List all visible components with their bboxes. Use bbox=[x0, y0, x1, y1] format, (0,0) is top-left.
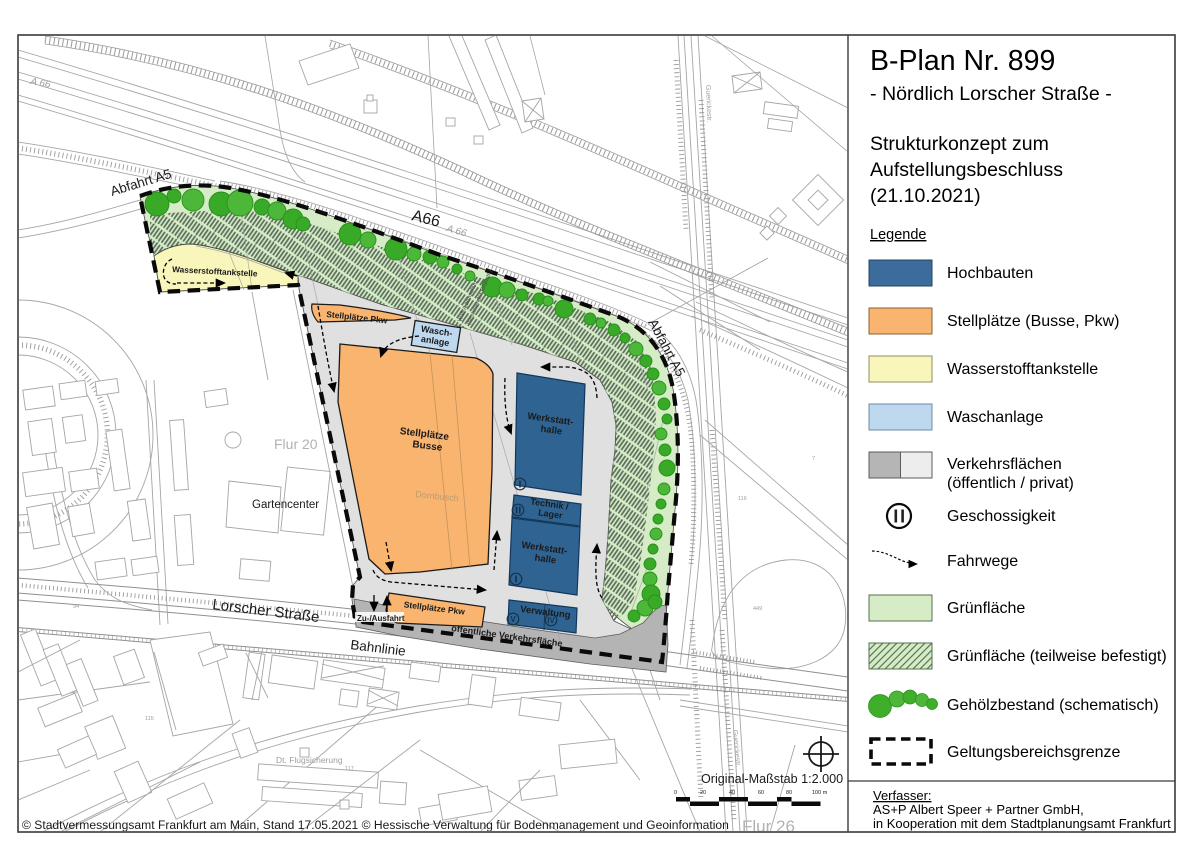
svg-text:in Kooperation mit dem Stadtpl: in Kooperation mit dem Stadtplanungsamt … bbox=[873, 816, 1171, 831]
svg-text:AS+P Albert Speer + Partner Gm: AS+P Albert Speer + Partner GmbH, bbox=[873, 802, 1084, 817]
svg-text:Geschossigkeit: Geschossigkeit bbox=[947, 508, 1056, 525]
svg-text:Waschanlage: Waschanlage bbox=[947, 409, 1043, 426]
svg-text:449: 449 bbox=[753, 606, 762, 612]
svg-text:Legende: Legende bbox=[870, 227, 926, 243]
svg-text:Wasserstofftankstelle: Wasserstofftankstelle bbox=[947, 361, 1098, 378]
svg-text:116: 116 bbox=[738, 496, 747, 502]
svg-text:94: 94 bbox=[73, 604, 79, 610]
svg-text:Fahrwege: Fahrwege bbox=[947, 553, 1018, 570]
svg-text:Flur 20: Flur 20 bbox=[274, 436, 318, 452]
svg-text:Verkehrsflächen: Verkehrsflächen bbox=[947, 456, 1062, 473]
svg-text:Original-Maßstab 1:2.000: Original-Maßstab 1:2.000 bbox=[701, 772, 843, 786]
svg-text:80: 80 bbox=[786, 790, 792, 796]
svg-text:20: 20 bbox=[700, 790, 706, 796]
svg-text:Geltungsbereichsgrenze: Geltungsbereichsgrenze bbox=[947, 744, 1121, 761]
svg-text:Stellplätze (Busse, Pkw): Stellplätze (Busse, Pkw) bbox=[947, 313, 1120, 330]
svg-text:Verfasser:: Verfasser: bbox=[873, 788, 932, 803]
svg-text:Grünfläche: Grünfläche bbox=[947, 600, 1025, 617]
svg-text:Grünfläche (teilweise befestig: Grünfläche (teilweise befestigt) bbox=[947, 648, 1167, 665]
svg-text:40: 40 bbox=[729, 790, 735, 796]
svg-text:115: 115 bbox=[145, 716, 154, 722]
svg-text:0: 0 bbox=[674, 790, 677, 796]
svg-text:Hochbauten: Hochbauten bbox=[947, 265, 1033, 282]
svg-text:100 m: 100 m bbox=[812, 790, 828, 796]
svg-text:B-Plan Nr. 899: B-Plan Nr. 899 bbox=[870, 45, 1055, 77]
svg-text:(21.10.2021): (21.10.2021) bbox=[870, 185, 981, 207]
svg-text:Gartencenter: Gartencenter bbox=[252, 499, 319, 511]
svg-text:- Nördlich Lorscher Straße -: - Nördlich Lorscher Straße - bbox=[870, 83, 1112, 105]
svg-text:Guerickestr.: Guerickestr. bbox=[704, 85, 712, 123]
svg-text:60: 60 bbox=[758, 790, 764, 796]
svg-text:7: 7 bbox=[812, 456, 815, 462]
svg-text:Strukturkonzept zum: Strukturkonzept zum bbox=[870, 133, 1049, 155]
svg-text:© Stadtvermessungsamt Frankfur: © Stadtvermessungsamt Frankfurt am Main,… bbox=[22, 818, 729, 832]
svg-text:Zu-/Ausfahrt: Zu-/Ausfahrt bbox=[357, 614, 405, 623]
svg-text:V: V bbox=[510, 615, 516, 624]
svg-text:Aufstellungsbeschluss: Aufstellungsbeschluss bbox=[870, 159, 1063, 181]
svg-text:117: 117 bbox=[345, 766, 354, 772]
svg-text:IV: IV bbox=[547, 616, 555, 625]
svg-text:(öffentlich / privat): (öffentlich / privat) bbox=[947, 475, 1074, 492]
svg-text:Gehölzbestand (schematisch): Gehölzbestand (schematisch) bbox=[947, 697, 1159, 714]
svg-text:Dt. Flugsicherung: Dt. Flugsicherung bbox=[276, 755, 343, 765]
